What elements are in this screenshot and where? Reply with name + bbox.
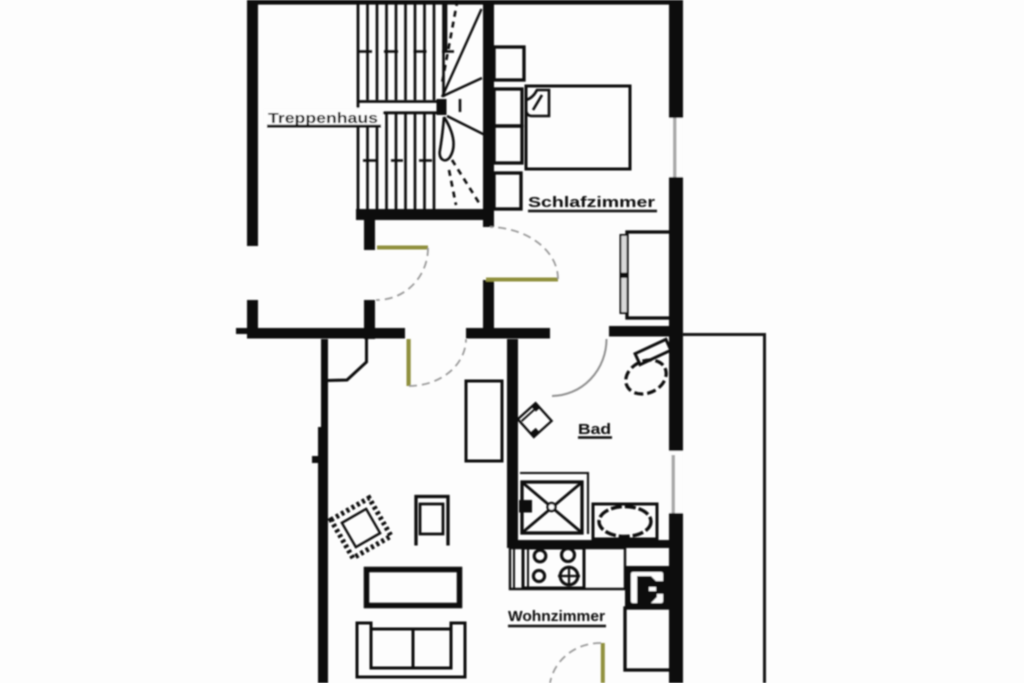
svg-text:Treppenhaus: Treppenhaus	[268, 110, 378, 127]
svg-text:Bad: Bad	[578, 421, 611, 438]
svg-text:Schlafzimmer: Schlafzimmer	[528, 194, 655, 211]
svg-text:Wohnzimmer: Wohnzimmer	[508, 609, 605, 625]
